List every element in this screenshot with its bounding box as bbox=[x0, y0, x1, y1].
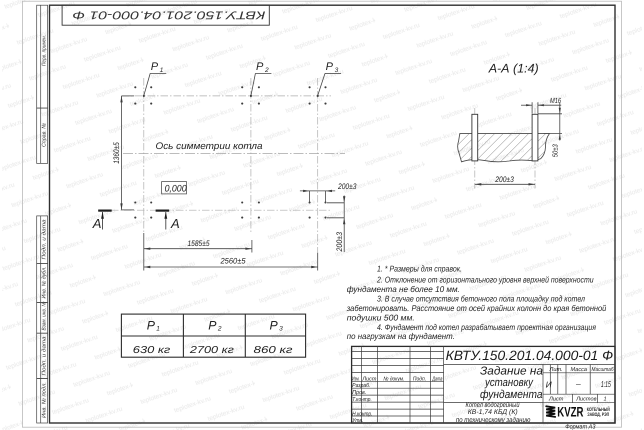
svg-text:1: 1 bbox=[156, 325, 160, 332]
svg-text:Дата: Дата bbox=[432, 376, 443, 382]
svg-text:Лит.: Лит. bbox=[549, 367, 563, 373]
svg-text:1: 1 bbox=[604, 397, 607, 403]
svg-text:Перв. примен.: Перв. примен. bbox=[41, 35, 47, 66]
svg-text:0,000: 0,000 bbox=[165, 184, 188, 195]
svg-text:2560±5: 2560±5 bbox=[220, 257, 246, 266]
svg-text:Подп. и дата: Подп. и дата bbox=[41, 337, 47, 376]
svg-text:по техническому заданию: по техническому заданию bbox=[456, 416, 531, 424]
svg-text:И: И bbox=[546, 379, 553, 389]
svg-text:Котел водогрейный: Котел водогрейный bbox=[466, 401, 520, 409]
svg-text:630 кг: 630 кг bbox=[133, 345, 171, 356]
svg-text:фундамента не более 10 мм.: фундамента не более 10 мм. bbox=[347, 284, 460, 294]
svg-text:P: P bbox=[208, 319, 217, 333]
svg-text:Т.контр.: Т.контр. bbox=[352, 397, 372, 403]
svg-text:P: P bbox=[151, 61, 159, 73]
svg-text:3: 3 bbox=[279, 325, 283, 332]
svg-text:P: P bbox=[147, 319, 156, 333]
svg-text:по нагрузкам на фундамент.: по нагрузкам на фундамент. bbox=[347, 331, 455, 341]
svg-text:Подп.: Подп. bbox=[413, 375, 426, 382]
svg-text:Разраб.: Разраб. bbox=[352, 382, 370, 389]
svg-text:200±3: 200±3 bbox=[494, 175, 514, 184]
svg-text:подушки 500 мм.: подушки 500 мм. bbox=[347, 312, 415, 322]
svg-text:Масса: Масса bbox=[571, 367, 588, 373]
svg-text:–: – bbox=[575, 378, 581, 388]
svg-text:KVZR: KVZR bbox=[557, 404, 583, 419]
svg-text:2: 2 bbox=[217, 325, 222, 332]
svg-text:КВ-1,74 КБД (К): КВ-1,74 КБД (К) bbox=[468, 408, 518, 416]
svg-text:Подп. и дата: Подп. и дата bbox=[41, 220, 47, 260]
svg-text:Справ. №: Справ. № bbox=[41, 123, 47, 147]
svg-text:Задание на: Задание на bbox=[480, 366, 543, 378]
svg-text:установку: установку bbox=[484, 377, 534, 389]
svg-text:1585±5: 1585±5 bbox=[188, 239, 210, 248]
svg-text:Листов: Листов bbox=[575, 397, 596, 403]
svg-text:КВТУ.150.201.04.000-01 Ф: КВТУ.150.201.04.000-01 Ф bbox=[446, 348, 614, 363]
svg-text:Взам. инв. №: Взам. инв. № bbox=[41, 301, 47, 330]
svg-text:200±3: 200±3 bbox=[337, 182, 357, 191]
svg-text:Изм.: Изм. bbox=[352, 376, 360, 382]
svg-text:860 кг: 860 кг bbox=[254, 345, 293, 356]
svg-text:№ докум.: № докум. bbox=[383, 375, 404, 382]
svg-text:P: P bbox=[270, 319, 279, 333]
svg-text:Инв. № дубл.: Инв. № дубл. bbox=[41, 267, 47, 299]
svg-text:2. Отклонение от горизонтальн: 2. Отклонение от горизонтального уровня … bbox=[376, 274, 594, 284]
svg-text:фундамента: фундамента bbox=[480, 389, 543, 401]
svg-text:ЗАВОД, РЭП: ЗАВОД, РЭП bbox=[587, 412, 609, 418]
svg-text:200±3: 200±3 bbox=[335, 232, 344, 253]
svg-text:Ось симметрии котла: Ось симметрии котла bbox=[156, 141, 263, 152]
svg-text:Лист: Лист bbox=[361, 376, 376, 382]
svg-text:Лист: Лист bbox=[548, 397, 564, 403]
svg-text:A: A bbox=[92, 216, 102, 231]
svg-text:2700 кг: 2700 кг bbox=[189, 345, 234, 356]
svg-text:50±3: 50±3 bbox=[551, 144, 560, 157]
svg-text:Утв.: Утв. bbox=[351, 418, 363, 424]
svg-text:Инв. № подл.: Инв. № подл. bbox=[41, 382, 47, 418]
svg-text:КВТУ.150.201.04.000-01 Ф: КВТУ.150.201.04.000-01 Ф bbox=[72, 8, 265, 20]
svg-text:Формат А3: Формат А3 bbox=[565, 424, 596, 430]
svg-text:P: P bbox=[326, 61, 334, 73]
svg-text:A: A bbox=[170, 216, 180, 231]
svg-text:1360±5: 1360±5 bbox=[112, 142, 121, 164]
svg-text:P: P bbox=[256, 61, 264, 73]
svg-text:Масштаб: Масштаб bbox=[592, 366, 615, 373]
svg-text:А-А (1:4): А-А (1:4) bbox=[488, 62, 539, 76]
svg-text:1. * Размеры для справок.: 1. * Размеры для справок. bbox=[377, 264, 462, 274]
svg-text:Н.контр.: Н.контр. bbox=[352, 411, 372, 417]
svg-text:1:15: 1:15 bbox=[601, 379, 611, 389]
svg-text:Пров.: Пров. bbox=[352, 390, 366, 396]
svg-text:3. В случае отсутствия бетонн: 3. В случае отсутствия бетонного пола пл… bbox=[377, 294, 585, 304]
